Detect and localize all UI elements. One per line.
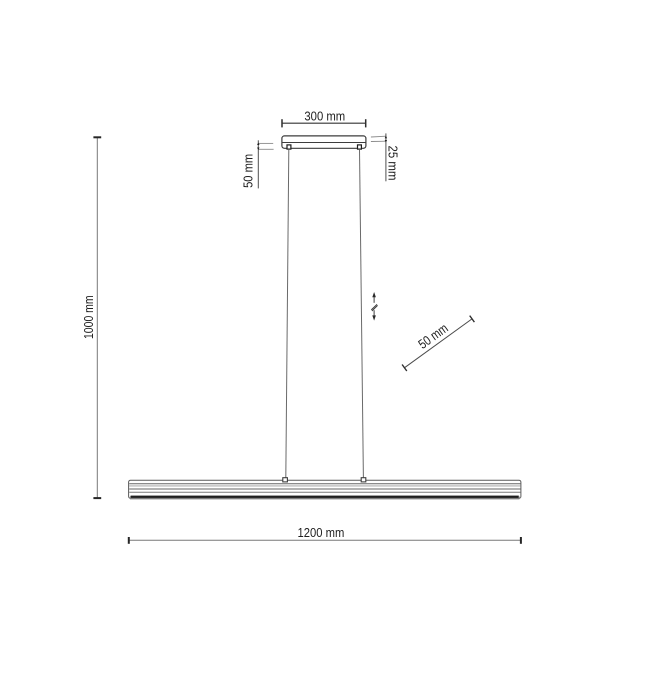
svg-text:25 mm: 25 mm [386, 146, 401, 181]
svg-text:50 mm: 50 mm [241, 154, 256, 188]
svg-text:300 mm: 300 mm [304, 108, 345, 123]
svg-text:1200 mm: 1200 mm [298, 525, 345, 540]
svg-text:1000 mm: 1000 mm [81, 295, 96, 339]
